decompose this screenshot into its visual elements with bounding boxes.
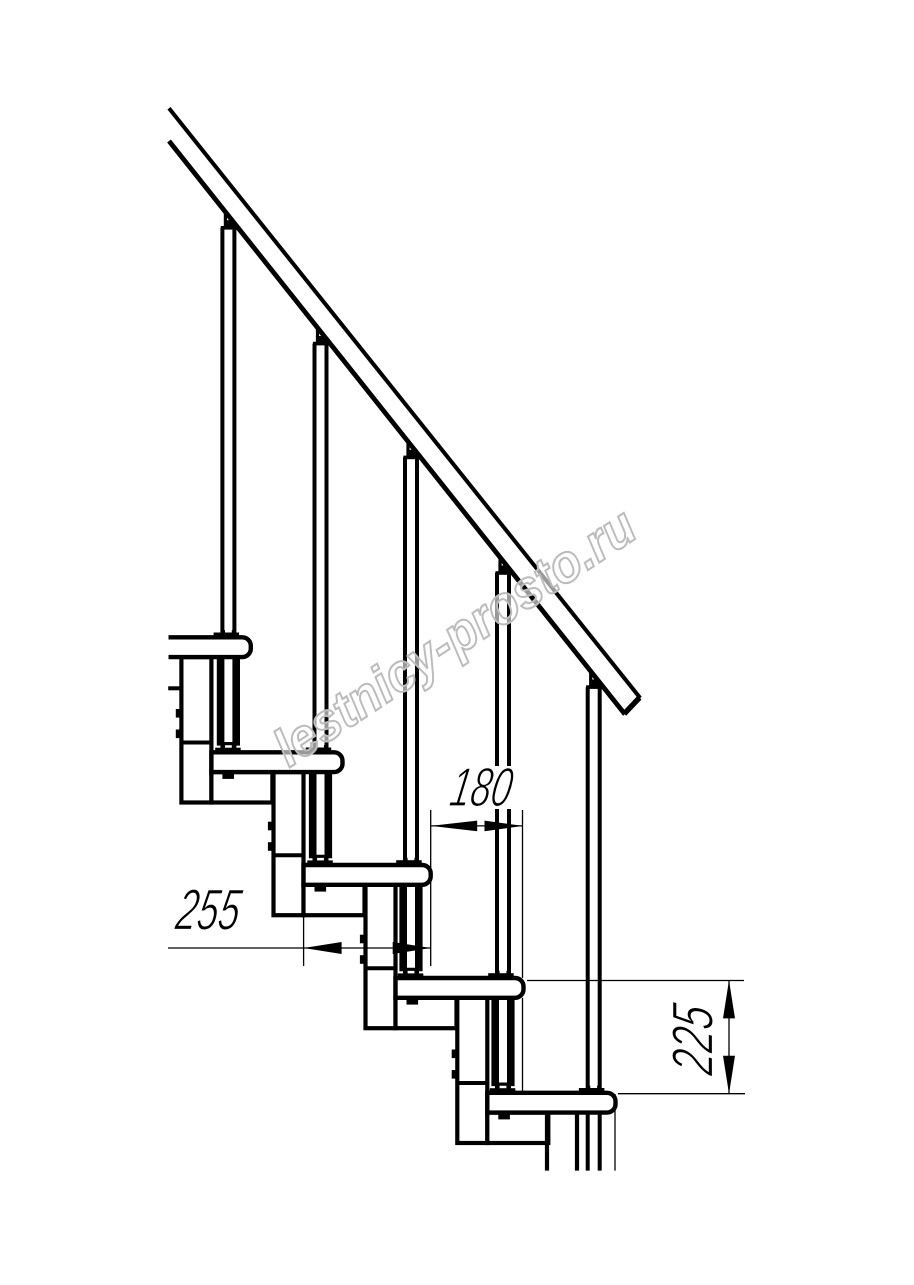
svg-text:180: 180 bbox=[446, 757, 518, 819]
svg-text:225: 225 bbox=[660, 999, 725, 1080]
svg-text:255: 255 bbox=[171, 878, 246, 943]
